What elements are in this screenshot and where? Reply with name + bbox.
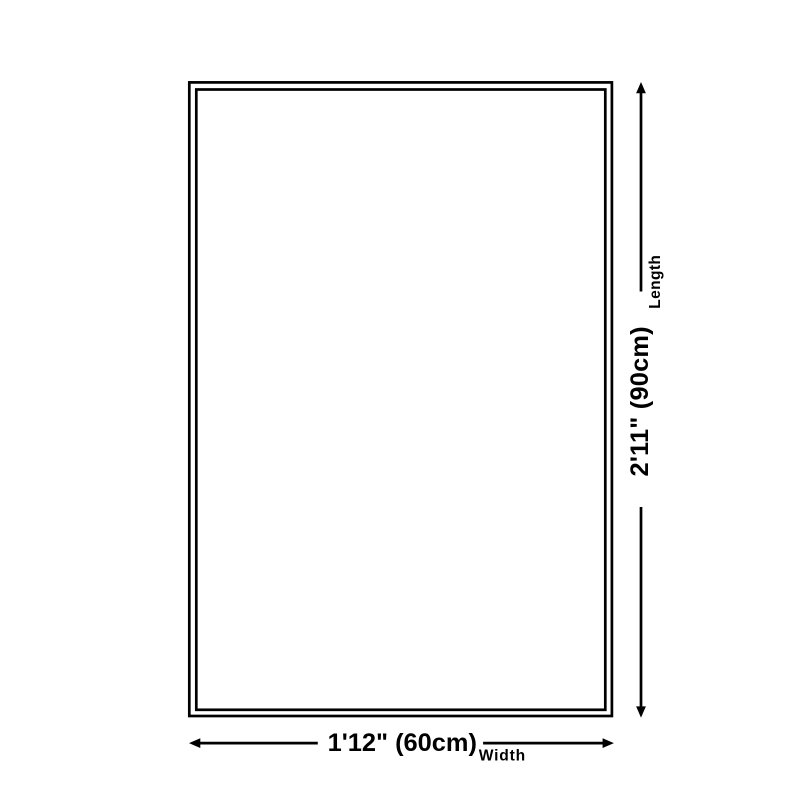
svg-text:Width: Width bbox=[479, 747, 526, 764]
svg-text:1'12" (60cm): 1'12" (60cm) bbox=[328, 729, 477, 757]
svg-text:Length: Length bbox=[647, 255, 664, 309]
svg-text:2'11" (90cm): 2'11" (90cm) bbox=[626, 326, 654, 476]
